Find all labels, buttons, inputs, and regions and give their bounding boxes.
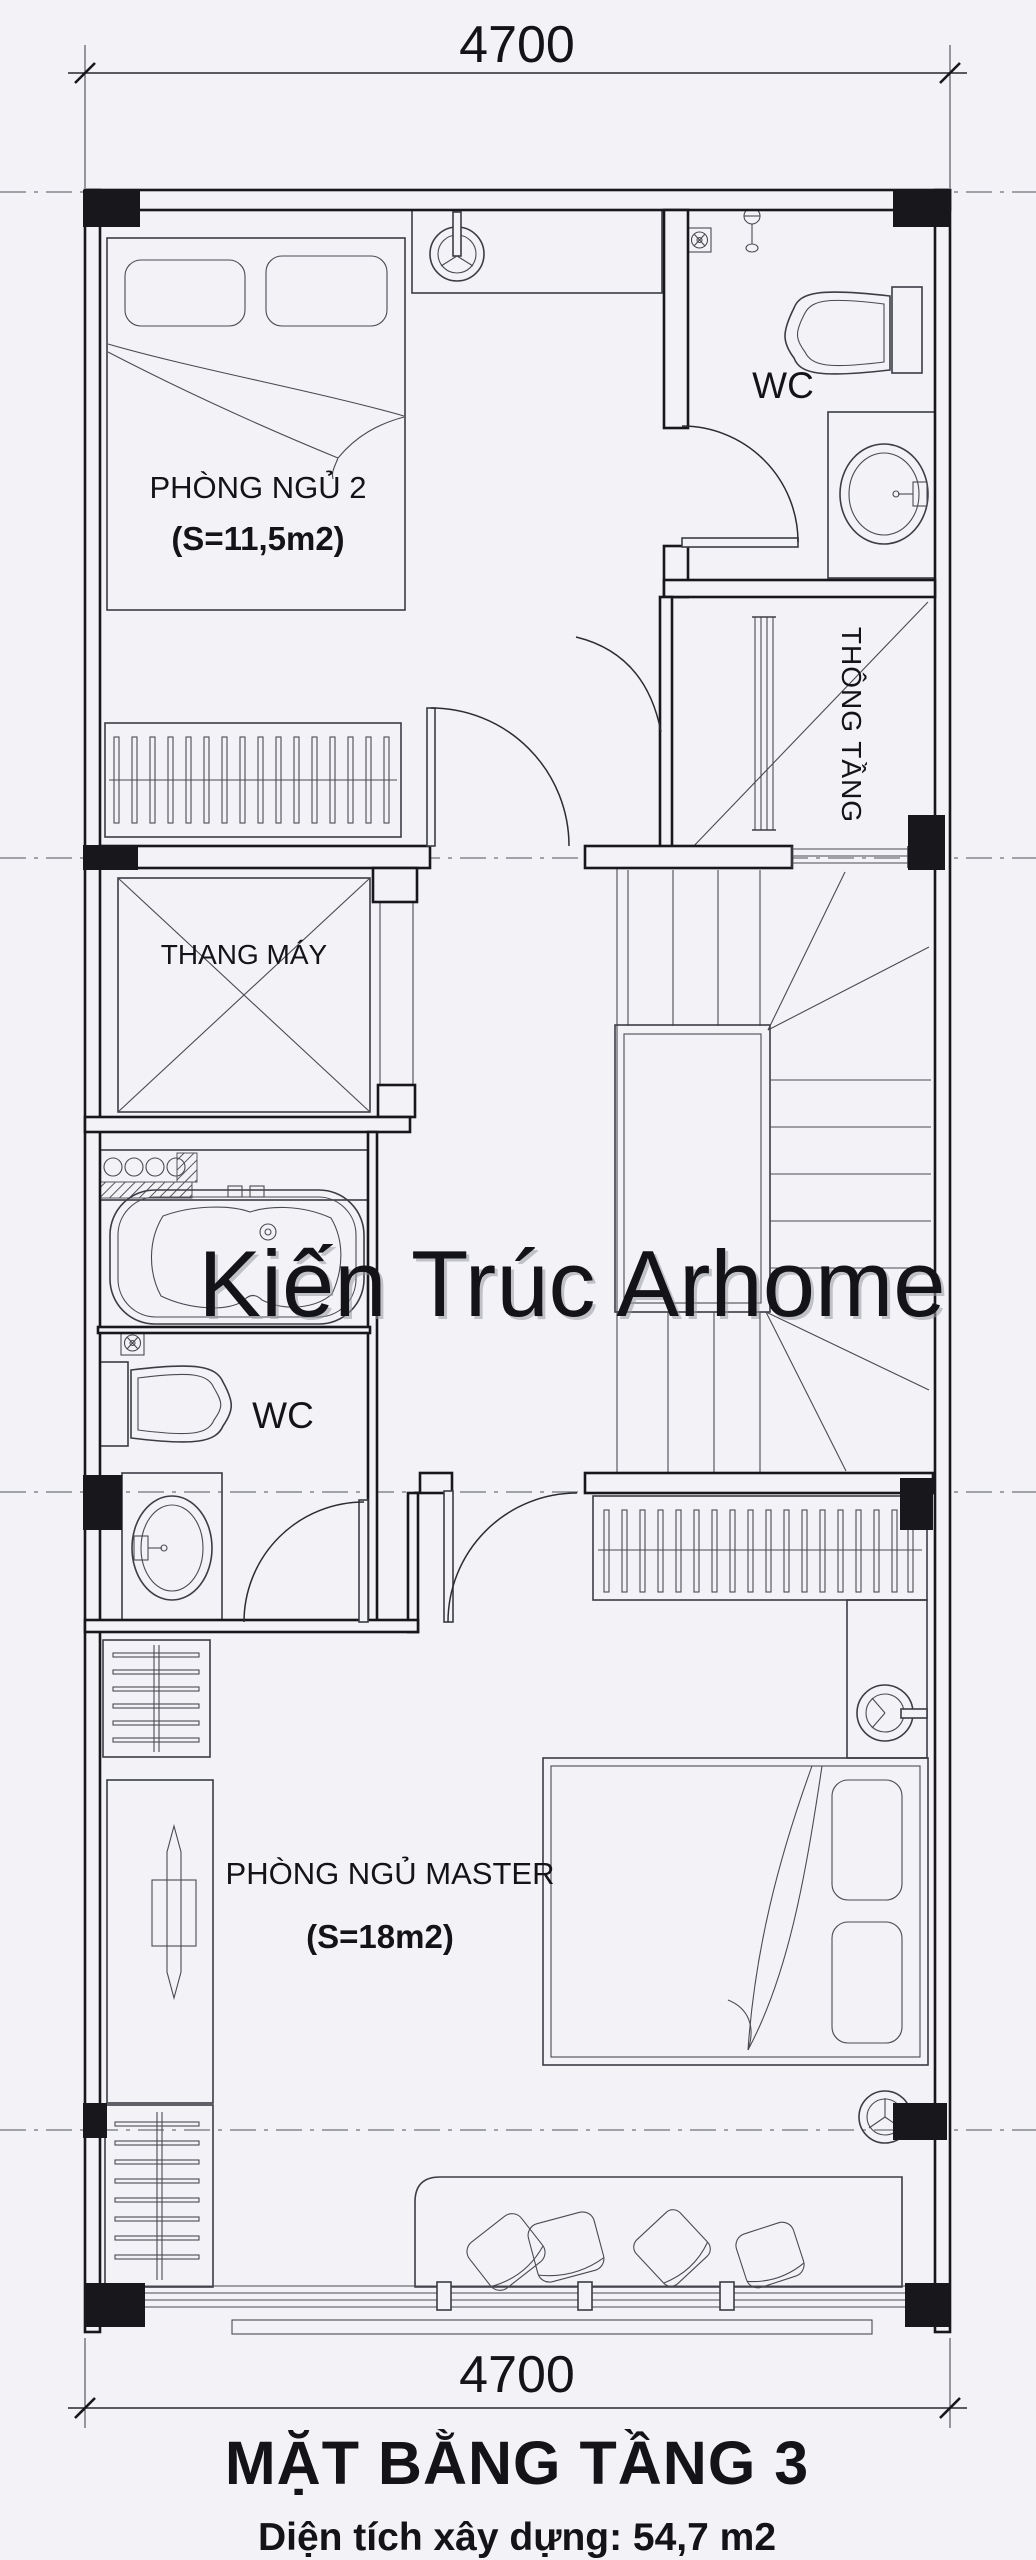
door-wc-top [682,426,798,547]
fan-cabinet [412,208,662,293]
master-label: PHÒNG NGỦ MASTER [226,1855,555,1891]
elevator-door [380,902,413,1085]
wardrobe-hangers [593,1496,927,1600]
balcony-railing [143,2282,908,2334]
pillow [832,1780,902,1900]
room-wc-top: WC [688,208,936,578]
toilet [785,287,922,374]
void-thong-tang: THÔNG TẦNG [690,602,928,850]
room-master: PHÒNG NGỦ MASTER (S=18m2) [103,1496,928,2295]
floor-cushion [462,2209,550,2295]
door-bedroom2 [427,708,569,846]
wc-top-label: WC [752,365,814,406]
footer: MẶT BẰNG TẦNG 3 Diện tích xây dựng: 54,7… [225,2429,809,2559]
bed-master [543,1758,928,2065]
watermark: Kiến Trúc Arhome Kiến Trúc Arhome [198,1231,948,1339]
door-wc-master [244,1500,368,1622]
pillow [832,1922,902,2043]
dressing-table [107,1780,213,2103]
floor-cushion [733,2219,807,2291]
floor-plan-drawing: PHÒNG NGỦ 2 (S=11,5m2) [0,0,1036,2560]
floor-cushion [630,2206,715,2291]
bedroom2-area: (S=11,5m2) [171,520,344,557]
exhaust-fan-icon [688,228,711,252]
plan-subtitle: Diện tích xây dựng: 54,7 m2 [258,2516,776,2559]
floor-plan-page: PHÒNG NGỦ 2 (S=11,5m2) [0,0,1036,2560]
wardrobe-hangers [105,723,401,837]
plan-title: MẶT BẰNG TẦNG 3 [225,2429,809,2497]
shelf-slatted [105,2105,213,2287]
door-corridor-arc [576,637,661,732]
room-bedroom2: PHÒNG NGỦ 2 (S=11,5m2) [105,208,662,837]
void-diagonal [690,602,928,850]
vanity-sink [122,1473,222,1622]
blanket-fold [108,344,404,416]
watermark-text: Kiến Trúc Arhome [198,1231,945,1336]
vanity-sink [828,412,936,578]
dimension-bottom-value: 4700 [459,2346,575,2404]
bathroom-master: WC [98,1150,373,1622]
void-label: THÔNG TẦNG [836,627,867,823]
floor-cushion [525,2209,606,2285]
master-area: (S=18m2) [306,1918,454,1955]
shower-tap-icon [744,208,760,252]
staircase [615,868,931,1473]
bedroom2-label: PHÒNG NGỦ 2 [149,469,366,505]
pillow [266,256,387,326]
elevator: THANG MÁY [118,878,413,1112]
dimension-bottom: 4700 [68,2338,967,2428]
shelf-slatted [103,1640,210,1757]
stair-window [792,846,908,868]
seating-platform [415,2177,902,2295]
wc-master-label: WC [252,1395,314,1436]
doors [244,426,798,1622]
fan-column [847,1600,927,1758]
void-window [752,617,776,830]
blanket-fold [748,1766,812,2050]
pillow [125,260,245,326]
dimension-top-value: 4700 [459,16,575,74]
exhaust-fan-icon [121,1331,144,1355]
door-master-entry [444,1491,577,1622]
dimension-top: 4700 [68,16,967,188]
windows [143,846,908,2334]
toilet [100,1362,231,1446]
balcony-slab [232,2320,872,2334]
elevator-label: THANG MÁY [161,939,328,970]
mirror [167,1826,181,1998]
